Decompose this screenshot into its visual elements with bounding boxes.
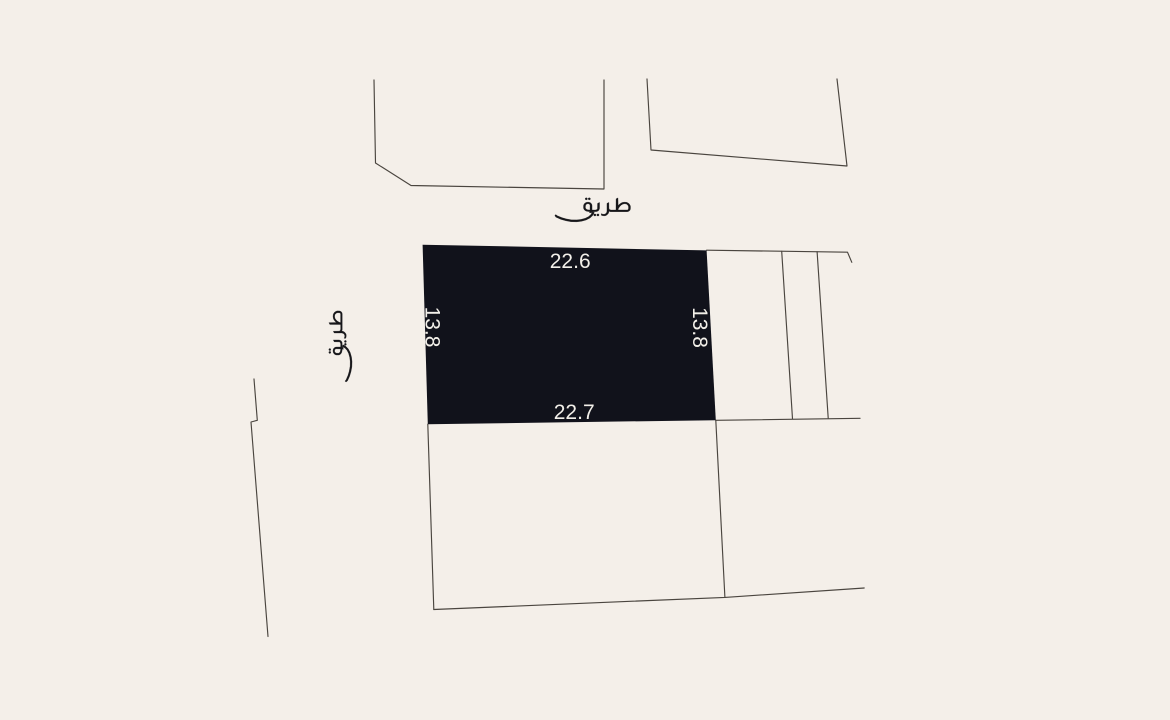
svg-text:13.8: 13.8 [688,307,711,348]
svg-text:13.8: 13.8 [421,307,444,348]
svg-text:22.6: 22.6 [550,250,591,273]
svg-text:22.7: 22.7 [554,401,595,424]
